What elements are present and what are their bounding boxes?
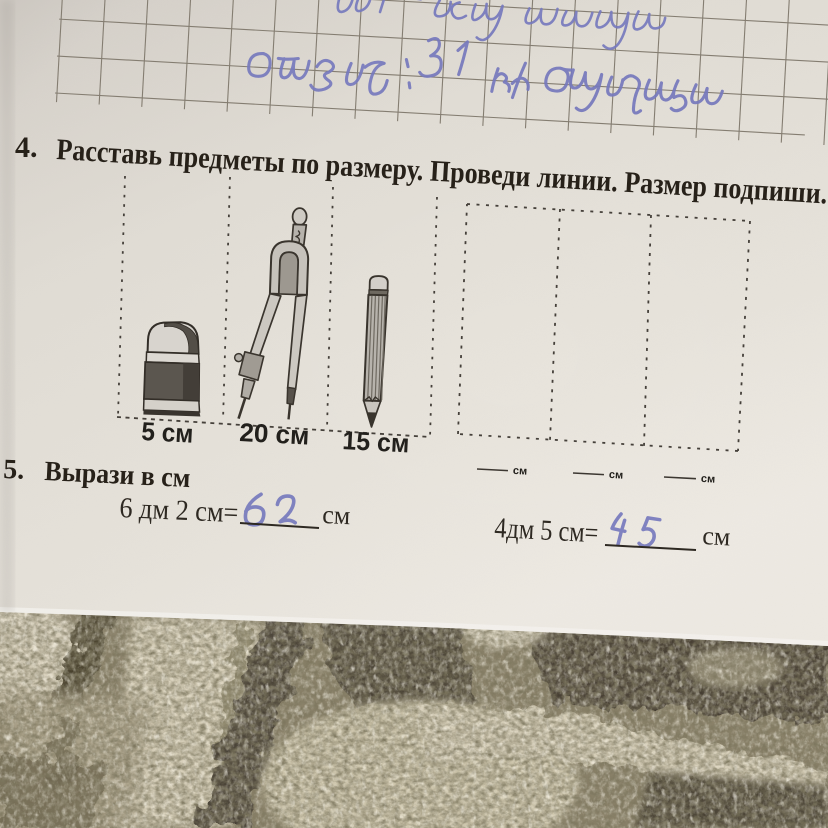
svg-text:см: см [322,500,351,530]
svg-text:см: см [513,465,528,478]
svg-text:см: см [609,469,624,482]
svg-text:4дм 5 см=: 4дм 5 см= [494,512,600,549]
svg-text:5.: 5. [3,454,25,486]
svg-text:20 см: 20 см [239,417,310,451]
svg-text:4.: 4. [15,131,38,164]
svg-text:см: см [701,473,716,486]
svg-text:см: см [702,521,731,551]
svg-text:15 см: 15 см [342,425,410,458]
svg-text:5 см: 5 см [141,416,194,449]
svg-text:6 дм 2 см=: 6 дм 2 см= [119,492,239,529]
